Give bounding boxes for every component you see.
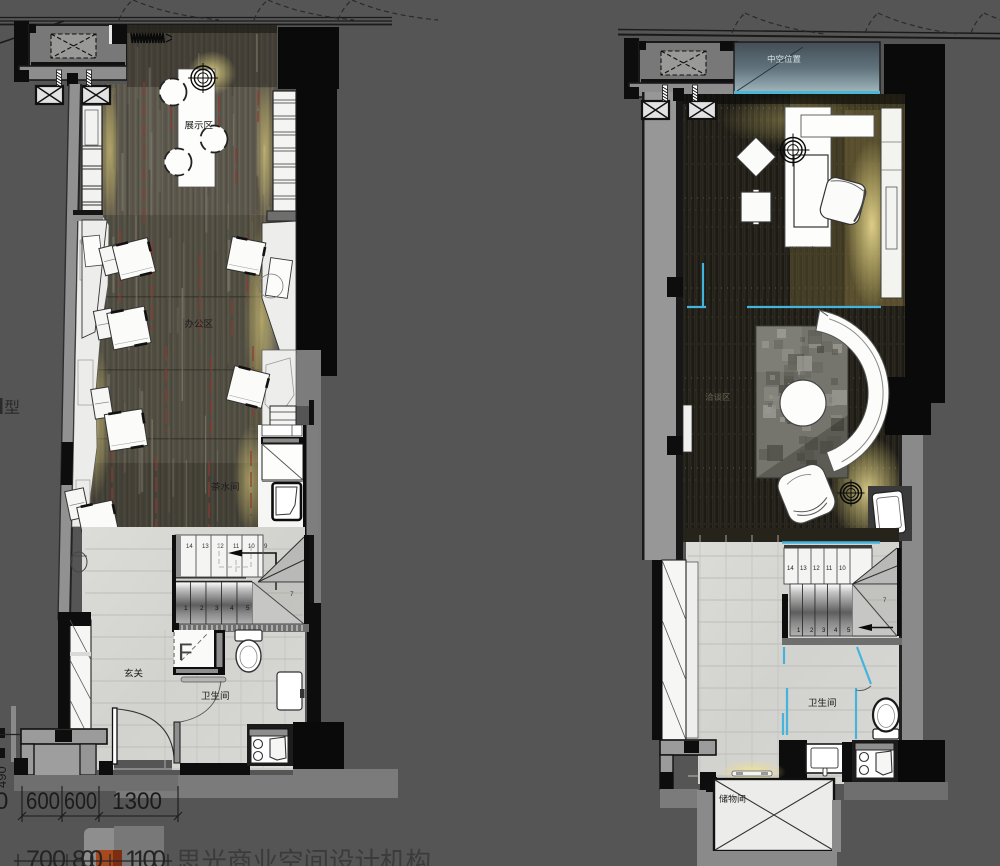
svg-text:10: 10 [248, 544, 255, 550]
svg-text:2: 2 [200, 605, 204, 612]
svg-text:600: 600 [26, 788, 60, 815]
svg-text:0: 0 [0, 788, 8, 815]
svg-text:800: 800 [72, 846, 103, 866]
svg-text:14: 14 [186, 544, 193, 550]
svg-text:11: 11 [826, 566, 833, 572]
svg-text:11: 11 [233, 544, 240, 550]
svg-text:490: 490 [0, 766, 9, 788]
svg-text:12: 12 [217, 544, 224, 550]
svg-text:1300: 1300 [112, 788, 162, 815]
svg-text:3: 3 [215, 605, 219, 612]
svg-text:600: 600 [64, 788, 97, 815]
svg-text:1: 1 [184, 605, 188, 612]
svg-text:13: 13 [202, 544, 209, 550]
svg-text:12: 12 [813, 566, 820, 572]
svg-text:1100: 1100 [125, 846, 166, 866]
svg-text:4: 4 [230, 605, 234, 612]
svg-text:13: 13 [800, 566, 807, 572]
svg-text:700: 700 [26, 846, 66, 866]
svg-text:10: 10 [839, 566, 846, 572]
svg-text:F: F [178, 639, 193, 666]
svg-text:14: 14 [787, 566, 794, 572]
svg-text:5: 5 [246, 605, 250, 612]
